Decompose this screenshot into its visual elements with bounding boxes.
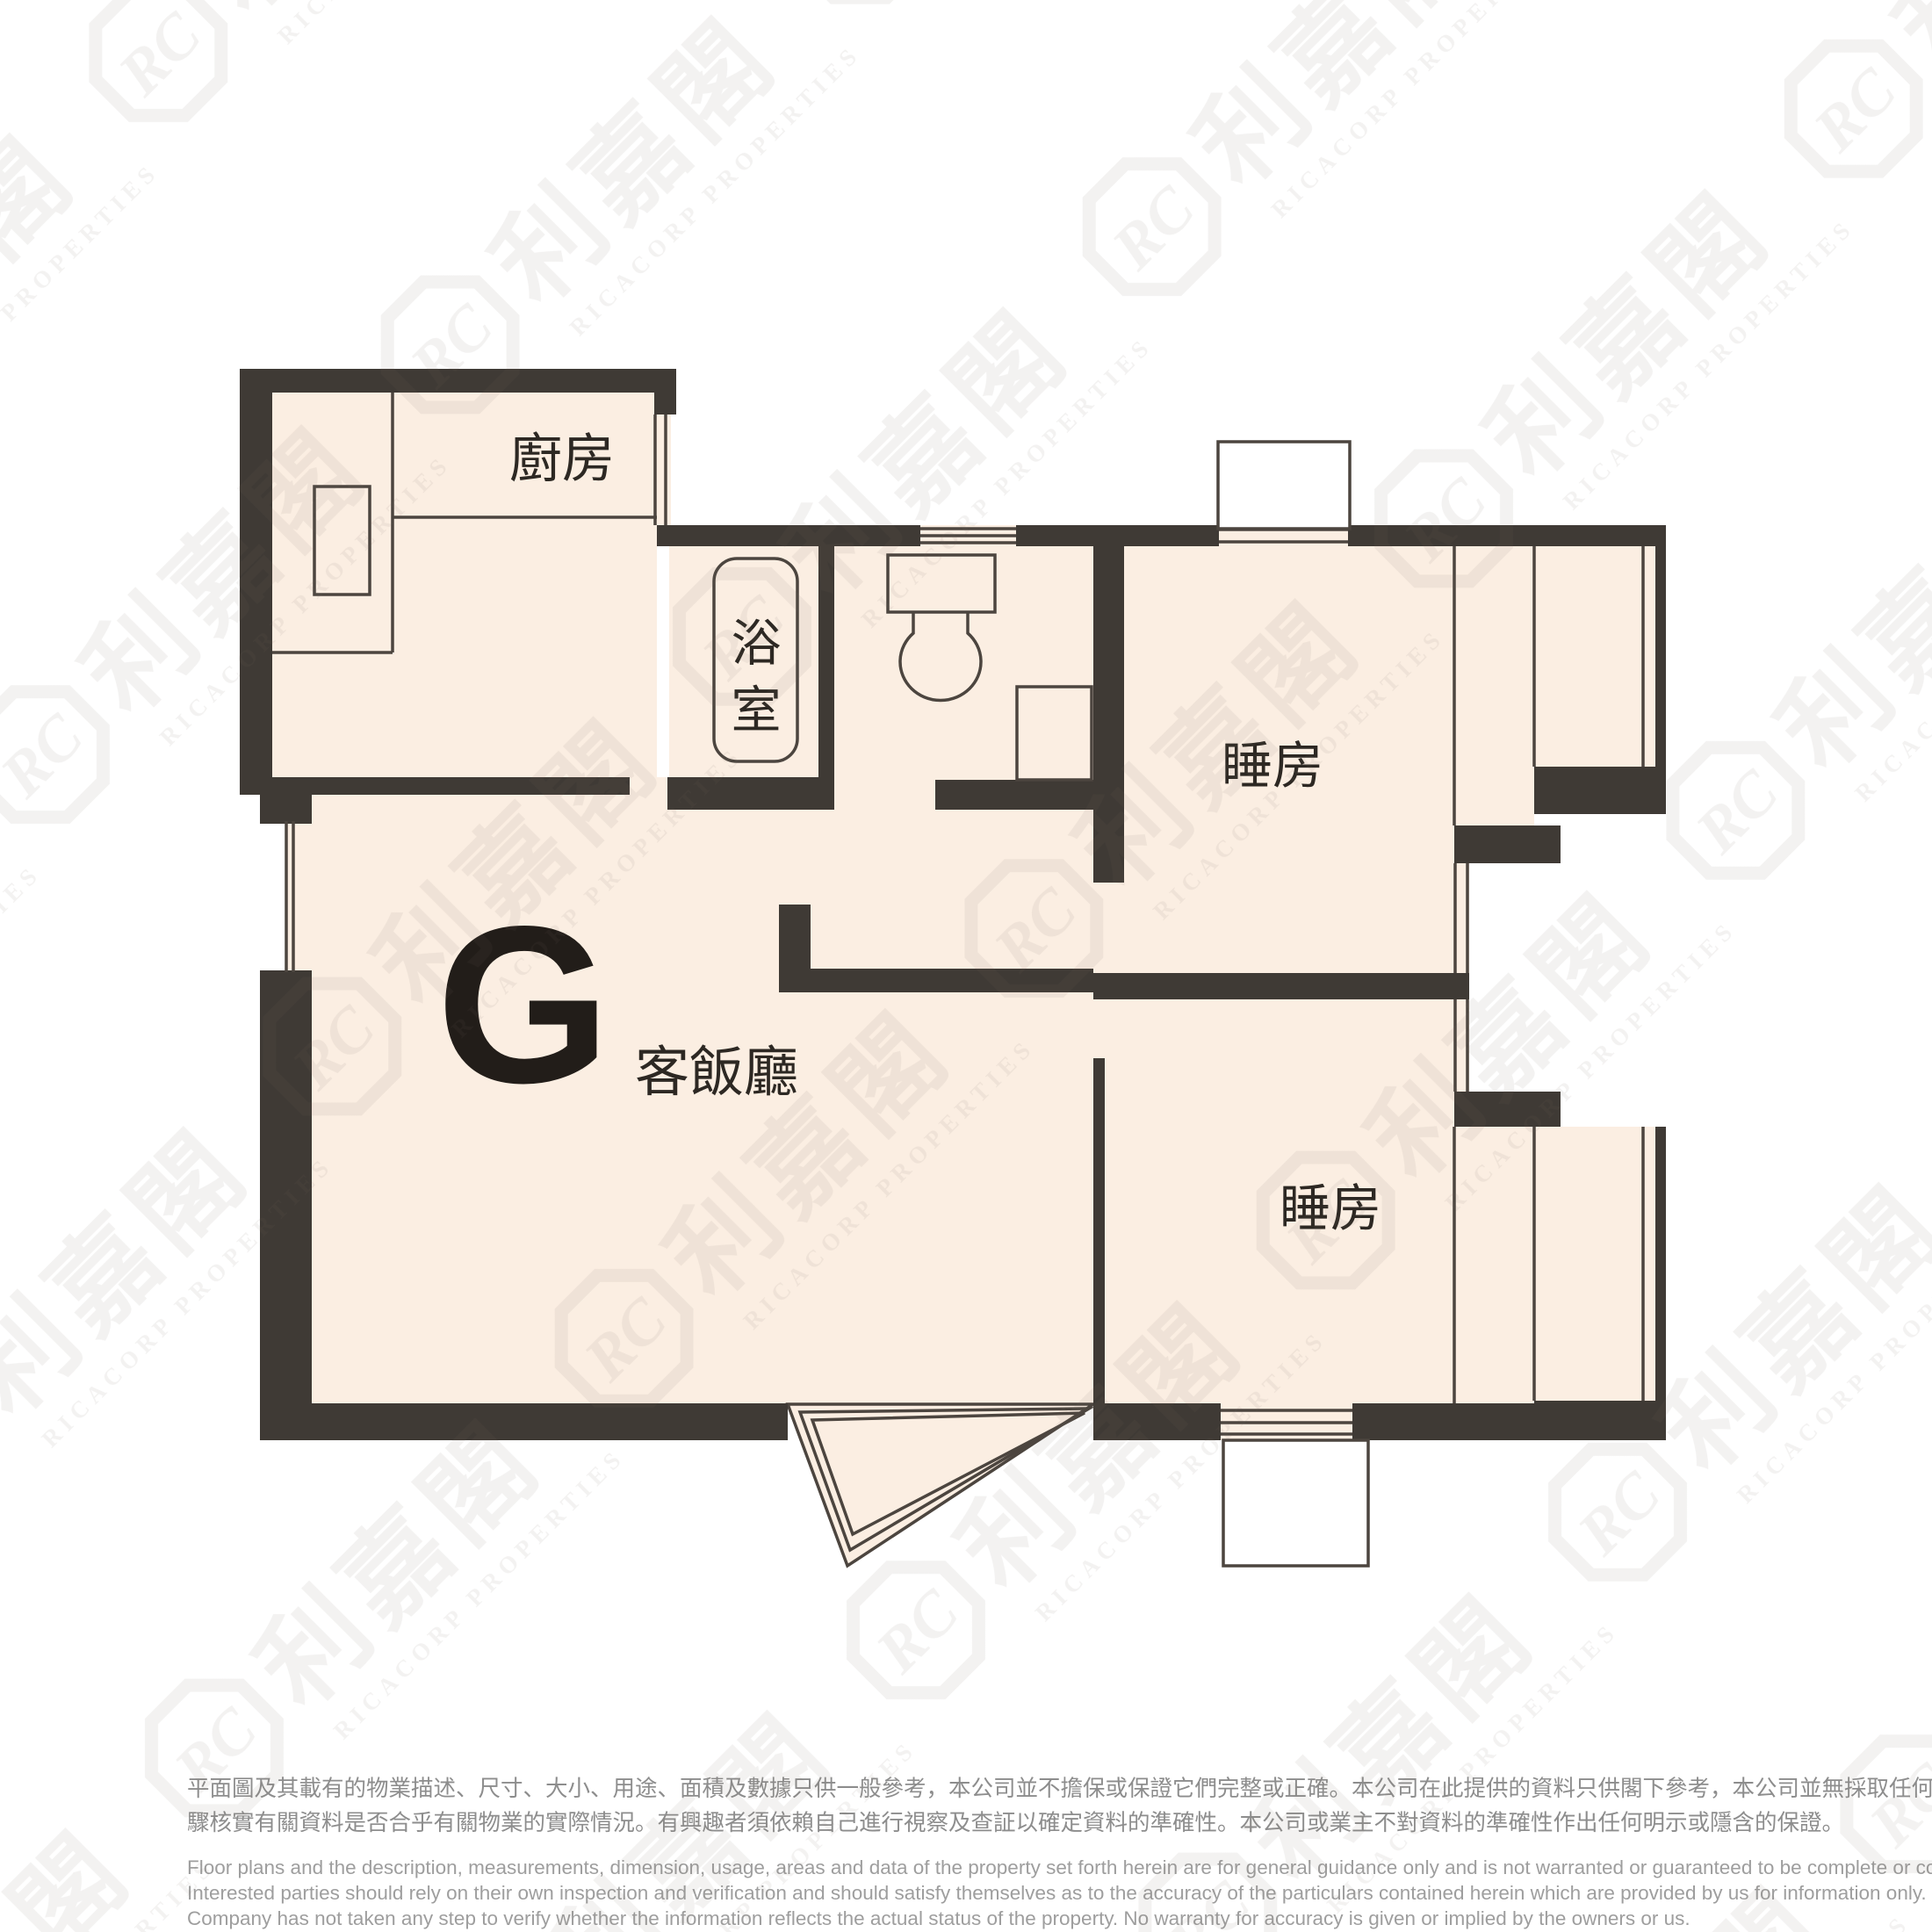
- disclaimer-en-line2: Interested parties should rely on their …: [187, 1880, 1921, 1906]
- toilet-door-opening: [834, 777, 935, 810]
- left-wall-recess: [244, 821, 286, 972]
- disclaimer-en-line3: Company has not taken any step to verify…: [187, 1906, 1921, 1931]
- bathroom-toilet-divider: [818, 546, 834, 777]
- bedroom2-left-wall: [1093, 1058, 1105, 1403]
- bedroom1-floor: [1124, 546, 1655, 973]
- bathroom-label-char2: 室: [732, 683, 782, 739]
- bathroom-bottom-wall: [667, 777, 834, 810]
- left-wall-lower: [260, 970, 312, 1440]
- living-dining-label: 客飯廳: [635, 1043, 798, 1103]
- bedroom2-bottom-seg1: [1093, 1403, 1221, 1440]
- bedroom2-bottom-seg2: [1352, 1403, 1534, 1440]
- bedroom2-door-opening: [1093, 999, 1105, 1058]
- disclaimer-zh-line1: 平面圖及其載有的物業描述、尺寸、大小、用途、面積及數據只供一般參考，本公司並不擔…: [187, 1772, 1921, 1806]
- entrance-door: [788, 1404, 1093, 1566]
- left-wall-upper: [260, 795, 312, 824]
- corridor-wall: [811, 969, 1093, 992]
- kitchen-label: 廚房: [509, 430, 615, 488]
- kitchen-door-opening: [630, 777, 667, 795]
- disclaimer-en-line1: Floor plans and the description, measure…: [187, 1855, 1921, 1880]
- ac-platform-bottom: [1223, 1440, 1368, 1566]
- floor-plan-page: 廚房 浴 室 睡房 睡房 G 客飯廳 平面圖及其載有的物業描述、尺寸、大小、用途…: [0, 0, 1932, 1932]
- bay1-bottom-block: [1534, 767, 1666, 814]
- unit-letter: G: [436, 880, 610, 1130]
- bedroom2-step-block: [1454, 1092, 1561, 1127]
- kitchen-left-wall: [240, 369, 272, 795]
- top-wall-seg1: [657, 525, 920, 546]
- toilet-floor: [834, 546, 1093, 782]
- bedroom1-door-opening: [1093, 883, 1124, 973]
- bedroom1-left-wall: [1093, 525, 1124, 883]
- bedroom1-label: 睡房: [1222, 738, 1323, 795]
- bedrooms-divider-wall: [1093, 973, 1469, 999]
- kitchen-corner-stub: [654, 369, 676, 415]
- top-wall-seg3: [1348, 525, 1655, 546]
- living-bottom-wall: [260, 1403, 788, 1440]
- corridor-stub-wall: [779, 905, 811, 992]
- floor-plan-drawing: 廚房 浴 室 睡房 睡房 G 客飯廳: [0, 0, 1932, 1932]
- kitchen-bottom-wall: [260, 777, 630, 795]
- disclaimer-block: 平面圖及其載有的物業描述、尺寸、大小、用途、面積及數據只供一般參考，本公司並不擔…: [187, 1772, 1921, 1931]
- bedroom2-label: 睡房: [1280, 1180, 1381, 1237]
- bathroom-label-char1: 浴: [732, 616, 782, 672]
- bay2-outer-edge: [1655, 1127, 1666, 1403]
- ac-platform-top: [1218, 442, 1350, 529]
- kitchen-top-wall: [240, 369, 676, 393]
- bay2-bottom-block: [1534, 1401, 1666, 1440]
- bedroom1-step-block: [1454, 825, 1561, 863]
- bay1-outer-edge: [1655, 525, 1666, 768]
- disclaimer-zh-line2: 驟核實有關資料是否合乎有關物業的實際情況。有興趣者須依賴自己進行視察及查証以確定…: [187, 1806, 1921, 1841]
